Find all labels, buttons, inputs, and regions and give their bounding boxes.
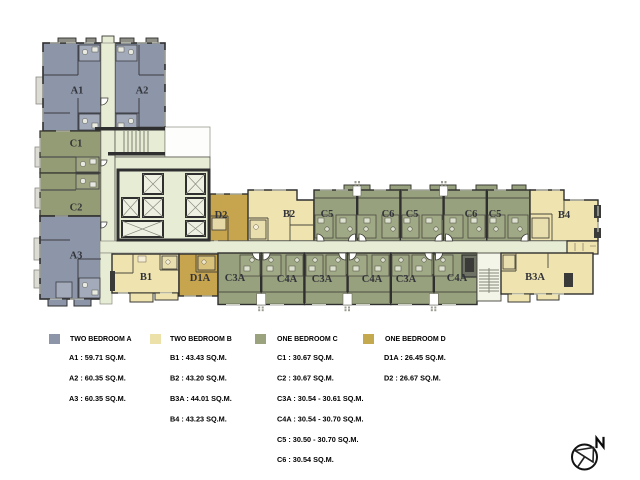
- svg-text:B4: B4: [558, 210, 571, 221]
- svg-text:C5: C5: [406, 209, 419, 220]
- svg-text:C5: C5: [489, 209, 502, 220]
- svg-text:C1 : 30.67 SQ.M.: C1 : 30.67 SQ.M.: [277, 353, 334, 362]
- svg-text:C6: C6: [382, 209, 395, 220]
- svg-text:D2 : 26.67 SQ.M.: D2 : 26.67 SQ.M.: [384, 374, 441, 383]
- svg-text:TWO BEDROOM A: TWO BEDROOM A: [70, 336, 132, 343]
- svg-text:A3: A3: [70, 251, 83, 262]
- svg-text:ONE BEDROOM C: ONE BEDROOM C: [277, 336, 338, 343]
- svg-text:B2 : 43.20 SQ.M.: B2 : 43.20 SQ.M.: [170, 374, 227, 383]
- svg-text:A2 : 60.35 SQ.M.: A2 : 60.35 SQ.M.: [69, 374, 126, 383]
- svg-text:C4A : 30.54 - 30.70 SQ.M.: C4A : 30.54 - 30.70 SQ.M.: [277, 415, 364, 424]
- svg-text:C3A: C3A: [396, 274, 417, 285]
- svg-text:C4A: C4A: [362, 274, 383, 285]
- svg-text:B3A : 44.01 SQ.M.: B3A : 44.01 SQ.M.: [170, 394, 232, 403]
- svg-text:D2: D2: [215, 210, 228, 221]
- svg-text:D1A: D1A: [190, 273, 211, 284]
- svg-text:C3A : 30.54 - 30.61 SQ.M.: C3A : 30.54 - 30.61 SQ.M.: [277, 394, 364, 403]
- svg-text:B3A: B3A: [525, 272, 545, 283]
- svg-text:C2 : 30.67 SQ.M.: C2 : 30.67 SQ.M.: [277, 374, 334, 383]
- svg-text:C4A: C4A: [277, 274, 298, 285]
- svg-text:B4 : 43.23 SQ.M.: B4 : 43.23 SQ.M.: [170, 415, 227, 424]
- svg-text:B1 : 43.43 SQ.M.: B1 : 43.43 SQ.M.: [170, 353, 227, 362]
- svg-text:C3A: C3A: [312, 274, 333, 285]
- svg-text:C5: C5: [321, 209, 334, 220]
- svg-text:C5 : 30.50 - 30.70 SQ.M.: C5 : 30.50 - 30.70 SQ.M.: [277, 435, 359, 444]
- svg-text:C3A: C3A: [225, 273, 246, 284]
- svg-text:TWO BEDROOM B: TWO BEDROOM B: [170, 336, 232, 343]
- svg-text:B1: B1: [140, 272, 152, 283]
- svg-text:C6: C6: [465, 209, 478, 220]
- svg-text:D1A : 26.45 SQ.M.: D1A : 26.45 SQ.M.: [384, 353, 446, 362]
- svg-text:A3 : 60.35 SQ.M.: A3 : 60.35 SQ.M.: [69, 394, 126, 403]
- svg-text:A1 : 59.71 SQ.M.: A1 : 59.71 SQ.M.: [69, 353, 126, 362]
- svg-text:A2: A2: [136, 86, 149, 97]
- svg-text:C6 : 30.54 SQ.M.: C6 : 30.54 SQ.M.: [277, 455, 334, 464]
- svg-text:C4A: C4A: [447, 273, 468, 284]
- svg-text:C2: C2: [70, 203, 83, 214]
- svg-text:ONE BEDROOM D: ONE BEDROOM D: [385, 336, 446, 343]
- svg-text:A1: A1: [71, 86, 84, 97]
- svg-text:C1: C1: [70, 139, 83, 150]
- svg-text:B2: B2: [283, 209, 295, 220]
